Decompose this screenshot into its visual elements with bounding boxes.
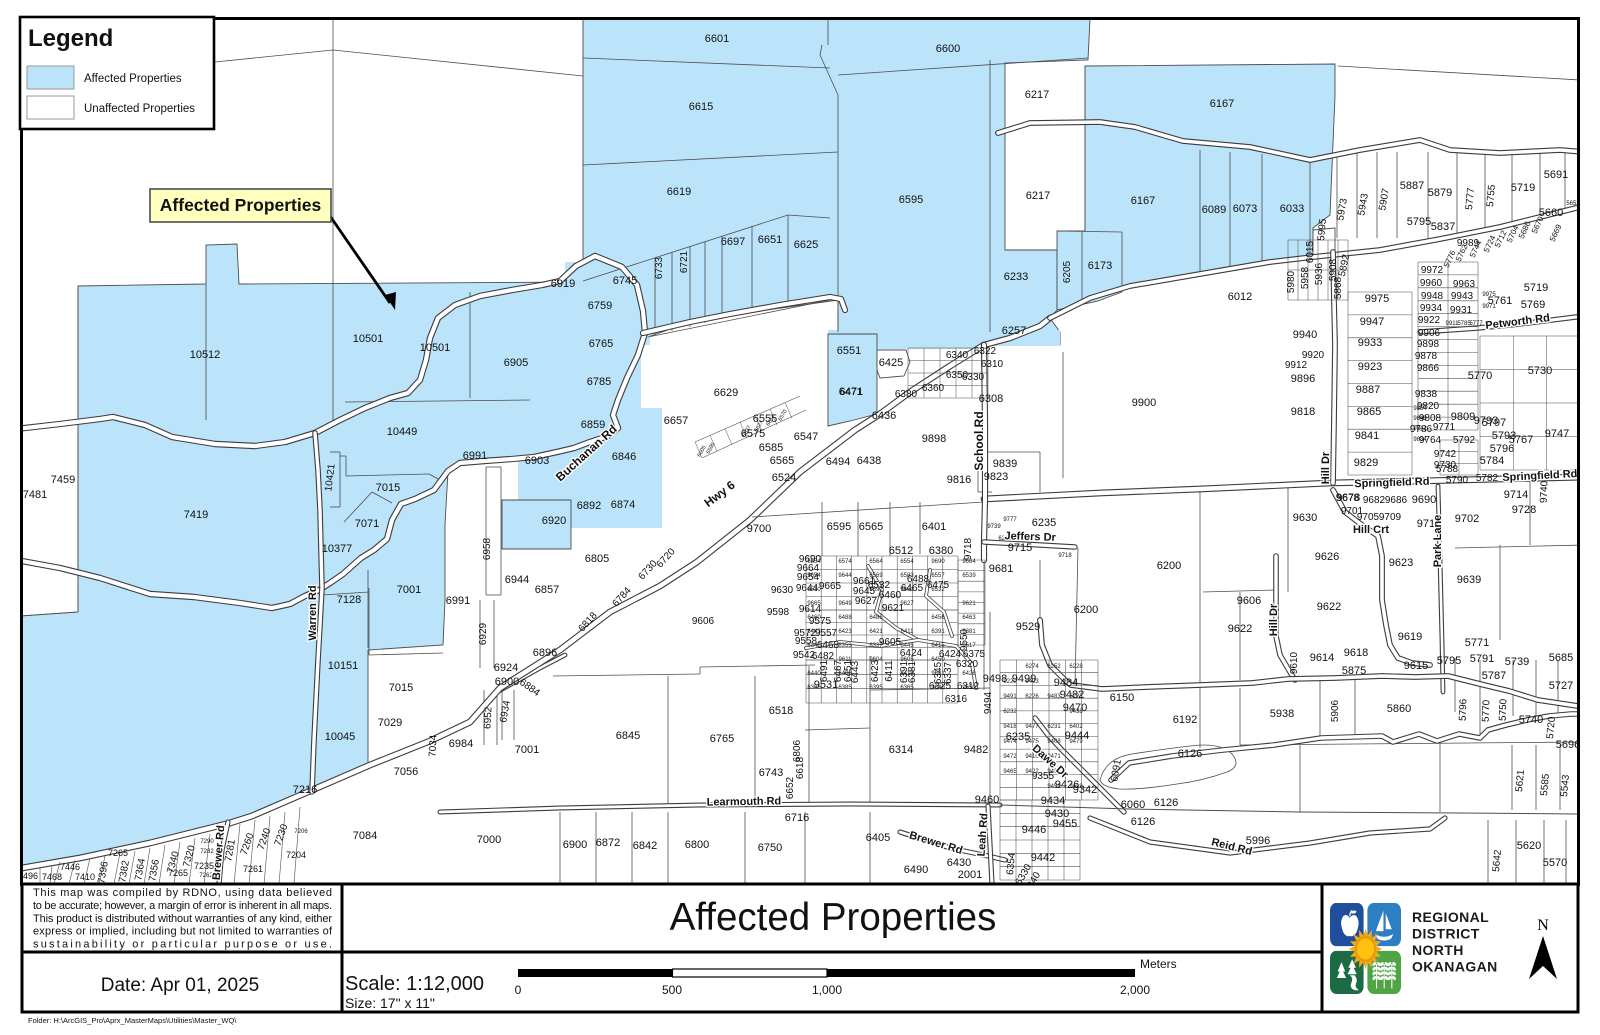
svg-text:6400: 6400 bbox=[838, 671, 852, 677]
svg-text:6652: 6652 bbox=[785, 776, 796, 799]
svg-text:6440: 6440 bbox=[807, 671, 821, 677]
svg-text:6438: 6438 bbox=[857, 455, 881, 467]
svg-text:9960: 9960 bbox=[1420, 278, 1443, 289]
svg-text:6223: 6223 bbox=[1069, 694, 1083, 700]
svg-text:9220: 9220 bbox=[1003, 679, 1017, 685]
svg-text:6952: 6952 bbox=[482, 706, 494, 729]
svg-text:7034: 7034 bbox=[427, 734, 439, 757]
svg-text:9896: 9896 bbox=[1291, 373, 1315, 385]
svg-text:6430: 6430 bbox=[947, 857, 971, 869]
svg-text:9605: 9605 bbox=[900, 657, 914, 663]
svg-text:6750: 6750 bbox=[758, 842, 782, 854]
svg-text:This product is distributed wi: This product is distributed without warr… bbox=[33, 913, 332, 925]
svg-text:5938: 5938 bbox=[1270, 708, 1294, 720]
svg-text:10449: 10449 bbox=[387, 426, 418, 438]
svg-text:7071: 7071 bbox=[355, 518, 379, 530]
svg-text:9627: 9627 bbox=[900, 601, 914, 607]
svg-text:Folder: H:\ArcGIS_Pro\Aprx_Mas: Folder: H:\ArcGIS_Pro\Aprx_MasterMaps\Ut… bbox=[28, 1016, 237, 1025]
svg-text:1,000: 1,000 bbox=[812, 983, 842, 997]
svg-text:REGIONAL: REGIONAL bbox=[1412, 909, 1489, 925]
svg-text:9483: 9483 bbox=[1047, 694, 1061, 700]
svg-text:6033: 6033 bbox=[1280, 203, 1304, 215]
svg-text:6418: 6418 bbox=[900, 671, 914, 677]
svg-text:9865: 9865 bbox=[1357, 406, 1381, 418]
svg-text:9465: 9465 bbox=[1003, 769, 1017, 775]
svg-text:6381: 6381 bbox=[962, 629, 976, 635]
svg-text:9606: 9606 bbox=[692, 616, 715, 627]
svg-text:6532: 6532 bbox=[931, 587, 945, 593]
svg-text:7204: 7204 bbox=[286, 850, 306, 860]
svg-text:6012: 6012 bbox=[1228, 291, 1252, 303]
svg-text:5995: 5995 bbox=[1316, 218, 1329, 242]
svg-text:9610: 9610 bbox=[1289, 651, 1300, 674]
svg-text:9843: 9843 bbox=[1413, 416, 1427, 422]
svg-text:6402: 6402 bbox=[1069, 724, 1083, 730]
svg-text:6615: 6615 bbox=[689, 101, 713, 113]
svg-text:6903: 6903 bbox=[525, 455, 549, 467]
svg-text:6919: 6919 bbox=[551, 278, 575, 290]
svg-text:5771: 5771 bbox=[1465, 637, 1489, 649]
svg-text:9681: 9681 bbox=[989, 563, 1013, 575]
svg-text:6920: 6920 bbox=[542, 515, 566, 527]
svg-text:Date: Apr 01, 2025: Date: Apr 01, 2025 bbox=[101, 975, 259, 996]
svg-text:6380: 6380 bbox=[929, 545, 953, 557]
svg-text:6167: 6167 bbox=[1210, 98, 1234, 110]
svg-text:6316: 6316 bbox=[945, 694, 968, 705]
svg-text:6518: 6518 bbox=[769, 705, 793, 717]
svg-text:5685: 5685 bbox=[1549, 652, 1573, 664]
svg-text:Learmouth Rd: Learmouth Rd bbox=[707, 795, 782, 808]
svg-text:6874: 6874 bbox=[611, 499, 635, 511]
svg-text:9777: 9777 bbox=[1003, 517, 1017, 523]
svg-text:5740: 5740 bbox=[1519, 714, 1543, 726]
svg-text:6395: 6395 bbox=[869, 685, 883, 691]
svg-text:Size: 17" x 11": Size: 17" x 11" bbox=[345, 995, 435, 1011]
svg-text:9771: 9771 bbox=[1433, 422, 1456, 433]
svg-text:6274: 6274 bbox=[1025, 664, 1039, 670]
svg-text:9665: 9665 bbox=[807, 601, 821, 607]
svg-text:9933: 9933 bbox=[1358, 337, 1382, 349]
svg-text:9816: 9816 bbox=[947, 474, 971, 486]
svg-text:6846: 6846 bbox=[612, 451, 636, 463]
svg-text:7290: 7290 bbox=[200, 839, 214, 845]
svg-text:Jeffers Dr: Jeffers Dr bbox=[1004, 530, 1056, 544]
svg-text:5795: 5795 bbox=[1437, 655, 1461, 667]
svg-text:9640: 9640 bbox=[931, 685, 945, 691]
svg-text:9948: 9948 bbox=[1421, 291, 1444, 302]
svg-text:9630: 9630 bbox=[1293, 512, 1317, 524]
svg-text:6512: 6512 bbox=[889, 545, 913, 557]
svg-text:6073: 6073 bbox=[1233, 203, 1257, 215]
svg-text:express or implied, including: express or implied, including but not li… bbox=[33, 926, 333, 938]
svg-text:Affected Properties: Affected Properties bbox=[670, 896, 997, 939]
svg-text:6425: 6425 bbox=[879, 357, 903, 369]
svg-text:9975: 9975 bbox=[1482, 292, 1496, 298]
svg-text:6697: 6697 bbox=[721, 236, 745, 248]
svg-text:6733: 6733 bbox=[654, 256, 665, 279]
svg-text:9690: 9690 bbox=[931, 559, 945, 565]
svg-text:6322: 6322 bbox=[974, 346, 997, 357]
svg-text:5792: 5792 bbox=[1453, 435, 1476, 446]
svg-text:9943: 9943 bbox=[1451, 291, 1474, 302]
svg-text:6595: 6595 bbox=[827, 521, 851, 533]
svg-text:6494: 6494 bbox=[826, 456, 850, 468]
svg-text:6765: 6765 bbox=[710, 733, 734, 745]
svg-text:7206: 7206 bbox=[294, 829, 308, 835]
svg-text:9418: 9418 bbox=[1069, 784, 1083, 790]
svg-text:5543: 5543 bbox=[1559, 774, 1572, 798]
svg-text:5642: 5642 bbox=[1491, 849, 1504, 873]
svg-text:6600: 6600 bbox=[936, 43, 960, 55]
svg-text:9460: 9460 bbox=[975, 794, 999, 806]
svg-text:7029: 7029 bbox=[378, 717, 402, 729]
svg-text:9705: 9705 bbox=[1357, 512, 1380, 523]
svg-text:9665: 9665 bbox=[819, 581, 842, 592]
svg-text:6924: 6924 bbox=[494, 662, 518, 674]
svg-text:10512: 10512 bbox=[190, 349, 221, 361]
svg-text:7410: 7410 bbox=[75, 872, 95, 882]
svg-text:9700: 9700 bbox=[747, 523, 771, 535]
svg-text:6547: 6547 bbox=[794, 431, 818, 443]
svg-text:9931: 9931 bbox=[1450, 305, 1473, 316]
svg-text:5787: 5787 bbox=[1482, 670, 1506, 682]
svg-text:10501: 10501 bbox=[353, 333, 384, 345]
svg-text:6745: 6745 bbox=[613, 275, 637, 287]
svg-text:9866: 9866 bbox=[1417, 363, 1440, 374]
svg-text:6257: 6257 bbox=[1002, 325, 1026, 337]
svg-text:9702: 9702 bbox=[1455, 513, 1479, 525]
svg-text:6463: 6463 bbox=[962, 615, 976, 621]
svg-text:9934: 9934 bbox=[1420, 303, 1443, 314]
svg-text:9975: 9975 bbox=[1365, 293, 1389, 305]
svg-text:6900: 6900 bbox=[563, 839, 587, 851]
svg-text:Meters: Meters bbox=[1140, 957, 1177, 971]
svg-text:9742: 9742 bbox=[1434, 449, 1457, 460]
svg-text:6314: 6314 bbox=[889, 744, 913, 756]
svg-text:N: N bbox=[1537, 917, 1549, 934]
svg-text:7015: 7015 bbox=[389, 682, 413, 694]
svg-text:9900: 9900 bbox=[1132, 397, 1156, 409]
svg-text:9730: 9730 bbox=[1434, 460, 1457, 471]
svg-text:6173: 6173 bbox=[1088, 260, 1112, 272]
svg-text:9829: 9829 bbox=[1354, 457, 1378, 469]
svg-text:9408: 9408 bbox=[1047, 739, 1061, 745]
svg-text:5879: 5879 bbox=[1428, 187, 1452, 199]
svg-text:9455: 9455 bbox=[1053, 818, 1077, 830]
svg-text:9747: 9747 bbox=[1545, 428, 1569, 440]
svg-text:5755: 5755 bbox=[1485, 184, 1498, 208]
svg-text:5958: 5958 bbox=[1300, 266, 1311, 289]
svg-text:5770: 5770 bbox=[1468, 370, 1492, 382]
svg-text:6126: 6126 bbox=[1131, 816, 1155, 828]
svg-text:7468: 7468 bbox=[42, 872, 62, 882]
svg-text:7000: 7000 bbox=[477, 834, 501, 846]
svg-text:9626: 9626 bbox=[1315, 551, 1339, 563]
svg-text:9664: 9664 bbox=[962, 559, 976, 565]
svg-text:6443: 6443 bbox=[807, 629, 821, 635]
svg-text:6510: 6510 bbox=[807, 587, 821, 593]
svg-text:9709: 9709 bbox=[1379, 512, 1402, 523]
svg-text:10045: 10045 bbox=[325, 731, 356, 743]
svg-text:5795: 5795 bbox=[1407, 216, 1431, 228]
svg-text:6657: 6657 bbox=[664, 415, 688, 427]
svg-text:6565: 6565 bbox=[859, 521, 883, 533]
svg-text:9529: 9529 bbox=[1016, 621, 1040, 633]
svg-text:7261: 7261 bbox=[243, 864, 263, 874]
svg-text:5750: 5750 bbox=[1498, 698, 1510, 721]
svg-text:5887: 5887 bbox=[1400, 180, 1424, 192]
svg-text:9649: 9649 bbox=[838, 601, 852, 607]
svg-text:9823: 9823 bbox=[984, 471, 1008, 483]
svg-text:7265: 7265 bbox=[108, 848, 128, 858]
svg-text:9630: 9630 bbox=[771, 585, 794, 596]
svg-text:6743: 6743 bbox=[759, 767, 783, 779]
svg-text:6228: 6228 bbox=[1069, 664, 1083, 670]
svg-text:6232: 6232 bbox=[1003, 709, 1017, 715]
svg-text:6460: 6460 bbox=[807, 615, 821, 621]
svg-text:NORTH: NORTH bbox=[1412, 942, 1464, 958]
svg-text:6721: 6721 bbox=[679, 250, 690, 273]
svg-text:9898: 9898 bbox=[1417, 339, 1440, 350]
svg-text:7419: 7419 bbox=[184, 509, 208, 521]
svg-text:6991: 6991 bbox=[463, 450, 487, 462]
svg-text:Warren Rd: Warren Rd bbox=[307, 585, 319, 640]
svg-text:6539: 6539 bbox=[962, 573, 976, 579]
svg-text:Legend: Legend bbox=[28, 25, 113, 52]
svg-text:6716: 6716 bbox=[785, 812, 809, 824]
svg-text:Hill Dr: Hill Dr bbox=[1268, 603, 1280, 636]
svg-text:7216: 7216 bbox=[293, 784, 317, 796]
svg-text:6426: 6426 bbox=[962, 671, 976, 677]
svg-text:6486: 6486 bbox=[869, 615, 883, 621]
svg-text:6380: 6380 bbox=[895, 389, 918, 400]
svg-text:7265: 7265 bbox=[168, 868, 188, 878]
svg-text:6126: 6126 bbox=[1178, 748, 1202, 760]
svg-text:9878: 9878 bbox=[1415, 351, 1438, 362]
svg-text:6929: 6929 bbox=[478, 622, 489, 645]
svg-text:9617: 9617 bbox=[962, 643, 976, 649]
svg-text:5777: 5777 bbox=[1464, 187, 1477, 211]
svg-text:5868: 5868 bbox=[1333, 276, 1344, 299]
svg-text:6583: 6583 bbox=[900, 573, 914, 579]
svg-text:Park Lane: Park Lane bbox=[1432, 515, 1444, 568]
svg-text:9418: 9418 bbox=[1003, 724, 1017, 730]
svg-text:9606: 9606 bbox=[1237, 595, 1261, 607]
svg-text:9446: 9446 bbox=[1022, 824, 1046, 836]
svg-text:9839: 9839 bbox=[993, 458, 1017, 470]
svg-text:6785: 6785 bbox=[587, 376, 611, 388]
svg-text:6205: 6205 bbox=[1062, 260, 1073, 283]
svg-text:9639: 9639 bbox=[1457, 574, 1481, 586]
svg-text:9714: 9714 bbox=[1504, 489, 1528, 501]
svg-text:School Rd: School Rd bbox=[972, 411, 986, 470]
svg-text:9622: 9622 bbox=[1228, 623, 1252, 635]
svg-text:6340: 6340 bbox=[946, 350, 969, 361]
svg-text:6490: 6490 bbox=[904, 864, 928, 876]
svg-text:5790: 5790 bbox=[1446, 475, 1469, 486]
svg-text:9842: 9842 bbox=[1413, 426, 1427, 432]
svg-text:5936: 5936 bbox=[1314, 262, 1325, 285]
svg-text:6456: 6456 bbox=[931, 615, 945, 621]
svg-text:7001: 7001 bbox=[397, 584, 421, 596]
svg-text:5875: 5875 bbox=[1342, 665, 1366, 677]
svg-text:9912: 9912 bbox=[1285, 360, 1308, 371]
svg-text:6308: 6308 bbox=[979, 393, 1003, 405]
svg-text:This map was compiled by RDNO,: This map was compiled by RDNO, using dat… bbox=[33, 887, 332, 899]
svg-text:7001: 7001 bbox=[515, 744, 539, 756]
svg-text:9678: 9678 bbox=[1337, 493, 1360, 504]
svg-text:9650: 9650 bbox=[962, 685, 976, 691]
svg-text:9922: 9922 bbox=[1418, 315, 1441, 326]
svg-text:5696: 5696 bbox=[1556, 739, 1580, 751]
svg-text:5906: 5906 bbox=[1330, 699, 1341, 722]
svg-text:9841: 9841 bbox=[1355, 430, 1379, 442]
svg-text:7056: 7056 bbox=[394, 766, 418, 778]
svg-text:6551: 6551 bbox=[837, 345, 861, 357]
svg-text:9793: 9793 bbox=[1474, 415, 1498, 427]
svg-text:6524: 6524 bbox=[772, 472, 796, 484]
svg-text:6575: 6575 bbox=[741, 428, 765, 440]
svg-text:OKANAGAN: OKANAGAN bbox=[1412, 959, 1498, 975]
svg-text:to be accurate; however, a mar: to be accurate; however, a margin of err… bbox=[33, 900, 332, 912]
svg-text:6564: 6564 bbox=[869, 559, 883, 565]
svg-text:6958: 6958 bbox=[482, 537, 493, 560]
svg-text:6200: 6200 bbox=[1157, 560, 1181, 572]
svg-text:6759: 6759 bbox=[588, 300, 612, 312]
svg-text:9692: 9692 bbox=[869, 587, 883, 593]
svg-text:9493: 9493 bbox=[1025, 679, 1039, 685]
svg-text:6310: 6310 bbox=[981, 359, 1004, 370]
svg-text:9906: 9906 bbox=[1418, 328, 1441, 339]
svg-text:6233: 6233 bbox=[1004, 271, 1028, 283]
svg-text:9494: 9494 bbox=[983, 691, 994, 714]
svg-text:6231: 6231 bbox=[1047, 724, 1061, 730]
svg-text:Scale: 1:12,000: Scale: 1:12,000 bbox=[345, 973, 484, 995]
svg-text:9614: 9614 bbox=[1310, 652, 1334, 664]
svg-text:7128: 7128 bbox=[337, 594, 361, 606]
svg-text:5719: 5719 bbox=[1511, 182, 1535, 194]
svg-text:Affected Properties: Affected Properties bbox=[160, 195, 322, 215]
svg-text:5796: 5796 bbox=[1490, 443, 1514, 455]
svg-text:9740: 9740 bbox=[1539, 480, 1551, 503]
svg-text:6800: 6800 bbox=[685, 839, 709, 851]
svg-text:9718: 9718 bbox=[1058, 553, 1072, 559]
svg-text:6555: 6555 bbox=[753, 413, 777, 425]
svg-text:6984: 6984 bbox=[449, 738, 473, 750]
svg-text:9479: 9479 bbox=[1069, 739, 1083, 745]
svg-text:9615: 9615 bbox=[1404, 660, 1428, 672]
svg-text:6845: 6845 bbox=[616, 730, 640, 742]
svg-text:6445: 6445 bbox=[900, 643, 914, 649]
svg-text:6574: 6574 bbox=[838, 559, 852, 565]
svg-text:6306: 6306 bbox=[807, 685, 821, 691]
svg-text:6601: 6601 bbox=[705, 33, 729, 45]
svg-text:6226: 6226 bbox=[1025, 694, 1039, 700]
svg-text:9604: 9604 bbox=[869, 657, 883, 663]
svg-text:6619: 6619 bbox=[667, 186, 691, 198]
svg-text:5660: 5660 bbox=[1539, 207, 1563, 219]
svg-text:Hill Crt: Hill Crt bbox=[1353, 524, 1389, 536]
svg-text:6765: 6765 bbox=[589, 338, 613, 350]
svg-text:6436: 6436 bbox=[872, 410, 896, 422]
svg-text:5769: 5769 bbox=[1521, 299, 1545, 311]
svg-text:5770: 5770 bbox=[1481, 699, 1493, 722]
svg-text:6857: 6857 bbox=[535, 584, 559, 596]
svg-text:6320: 6320 bbox=[956, 659, 979, 670]
svg-text:6905: 6905 bbox=[504, 357, 528, 369]
svg-text:5784: 5784 bbox=[1480, 455, 1504, 467]
svg-text:6557: 6557 bbox=[931, 573, 945, 579]
svg-text:6944: 6944 bbox=[505, 574, 529, 586]
svg-text:9963: 9963 bbox=[1453, 279, 1476, 290]
svg-text:5796: 5796 bbox=[1458, 698, 1470, 721]
svg-text:9422: 9422 bbox=[1025, 769, 1039, 775]
svg-text:Unaffected Properties: Unaffected Properties bbox=[84, 103, 195, 115]
svg-text:9627: 9627 bbox=[855, 596, 878, 607]
svg-text:9619: 9619 bbox=[1398, 631, 1422, 643]
svg-text:500: 500 bbox=[662, 983, 682, 997]
svg-text:9838: 9838 bbox=[1415, 389, 1438, 400]
svg-text:6651: 6651 bbox=[758, 234, 782, 246]
svg-text:6842: 6842 bbox=[633, 840, 657, 852]
svg-text:9618: 9618 bbox=[1344, 647, 1368, 659]
svg-text:5620: 5620 bbox=[1517, 840, 1541, 852]
svg-text:9622: 9622 bbox=[1317, 601, 1341, 613]
svg-text:6805: 6805 bbox=[585, 553, 609, 565]
svg-text:7015: 7015 bbox=[376, 482, 400, 494]
svg-text:6150: 6150 bbox=[1110, 692, 1134, 704]
svg-text:6200: 6200 bbox=[1074, 604, 1098, 616]
svg-text:6892: 6892 bbox=[577, 500, 601, 512]
svg-text:6488: 6488 bbox=[838, 615, 852, 621]
svg-text:9834: 9834 bbox=[1413, 437, 1427, 443]
svg-text:6252: 6252 bbox=[1047, 664, 1061, 670]
svg-text:9682: 9682 bbox=[1363, 495, 1386, 506]
svg-text:6900: 6900 bbox=[495, 676, 519, 688]
svg-text:6401: 6401 bbox=[922, 521, 946, 533]
svg-text:9491: 9491 bbox=[1003, 694, 1017, 700]
svg-text:10501: 10501 bbox=[420, 342, 451, 354]
svg-text:9923: 9923 bbox=[1358, 361, 1382, 373]
svg-text:6089: 6089 bbox=[1202, 204, 1226, 216]
svg-text:9482: 9482 bbox=[964, 744, 988, 756]
svg-text:6896: 6896 bbox=[533, 647, 557, 659]
svg-text:6872: 6872 bbox=[596, 837, 620, 849]
svg-text:7084: 7084 bbox=[353, 830, 377, 842]
svg-text:9739: 9739 bbox=[987, 524, 1001, 530]
svg-text:9477: 9477 bbox=[1025, 724, 1039, 730]
svg-text:6365: 6365 bbox=[900, 685, 914, 691]
svg-text:9654: 9654 bbox=[807, 573, 821, 579]
svg-text:9690: 9690 bbox=[1412, 494, 1436, 506]
svg-text:9644: 9644 bbox=[838, 573, 852, 579]
svg-text:9661: 9661 bbox=[900, 587, 914, 593]
svg-text:6350: 6350 bbox=[946, 370, 969, 381]
svg-text:5980: 5980 bbox=[1286, 270, 1297, 293]
svg-text:9434: 9434 bbox=[1041, 795, 1065, 807]
svg-text:6450: 6450 bbox=[931, 657, 945, 663]
svg-text:6991: 6991 bbox=[446, 595, 470, 607]
svg-text:9971: 9971 bbox=[1482, 304, 1496, 310]
svg-text:6411: 6411 bbox=[884, 660, 895, 682]
svg-text:5782: 5782 bbox=[1476, 473, 1499, 484]
svg-text:6415: 6415 bbox=[931, 643, 945, 649]
svg-text:Hill Dr: Hill Dr bbox=[1320, 451, 1332, 484]
svg-text:5691: 5691 bbox=[1544, 169, 1568, 181]
svg-text:7446: 7446 bbox=[60, 862, 80, 872]
svg-text:9472: 9472 bbox=[1003, 754, 1017, 760]
svg-text:6354: 6354 bbox=[1005, 852, 1018, 876]
